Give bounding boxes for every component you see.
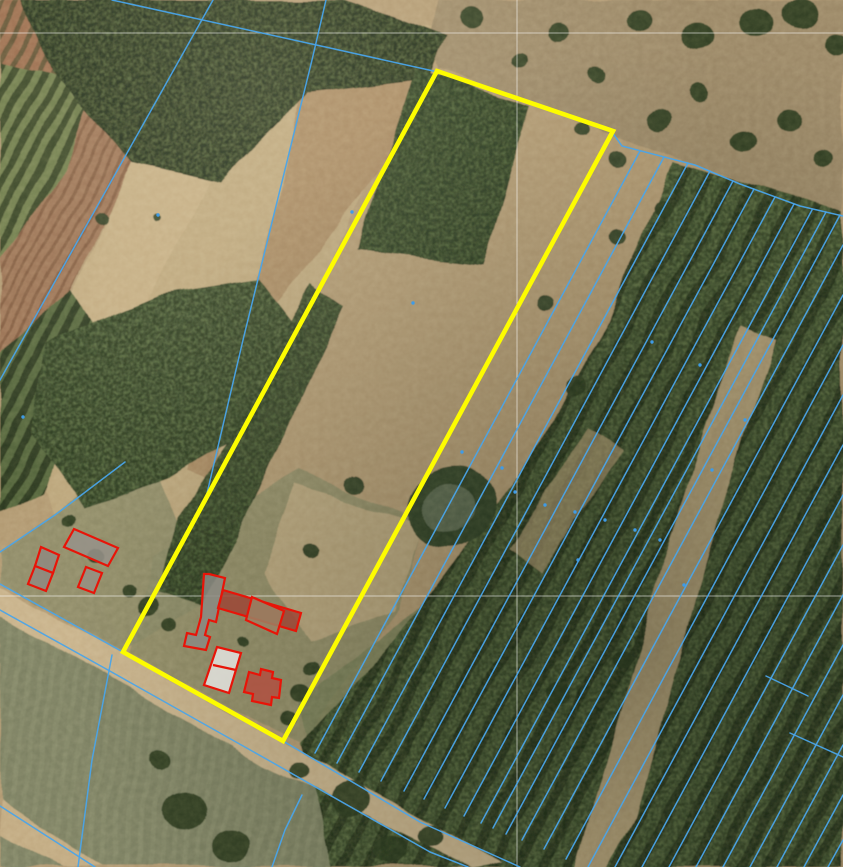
survey-point-dot: [710, 468, 713, 471]
survey-point-dot: [500, 466, 503, 469]
survey-point-dot: [21, 415, 24, 418]
survey-point-dot: [350, 210, 353, 213]
survey-point-dot: [411, 301, 414, 304]
survey-point-dot: [573, 510, 576, 513]
survey-point-dot: [698, 363, 701, 366]
survey-point-dot: [650, 340, 653, 343]
survey-point-dot: [543, 503, 546, 506]
survey-point-dot: [460, 450, 463, 453]
imagery-tone-layer: [0, 0, 843, 867]
survey-point-dot: [513, 490, 516, 493]
survey-point-dot: [743, 418, 746, 421]
survey-point-dot: [603, 518, 606, 521]
survey-point-dot: [633, 528, 636, 531]
map-viewport[interactable]: [0, 0, 843, 867]
survey-point-dot: [576, 558, 579, 561]
survey-point-dot: [682, 583, 685, 586]
survey-point-dot: [156, 213, 159, 216]
vignette-light: [0, 0, 843, 867]
aerial-map-canvas: [0, 0, 843, 867]
survey-point-dot: [658, 538, 661, 541]
